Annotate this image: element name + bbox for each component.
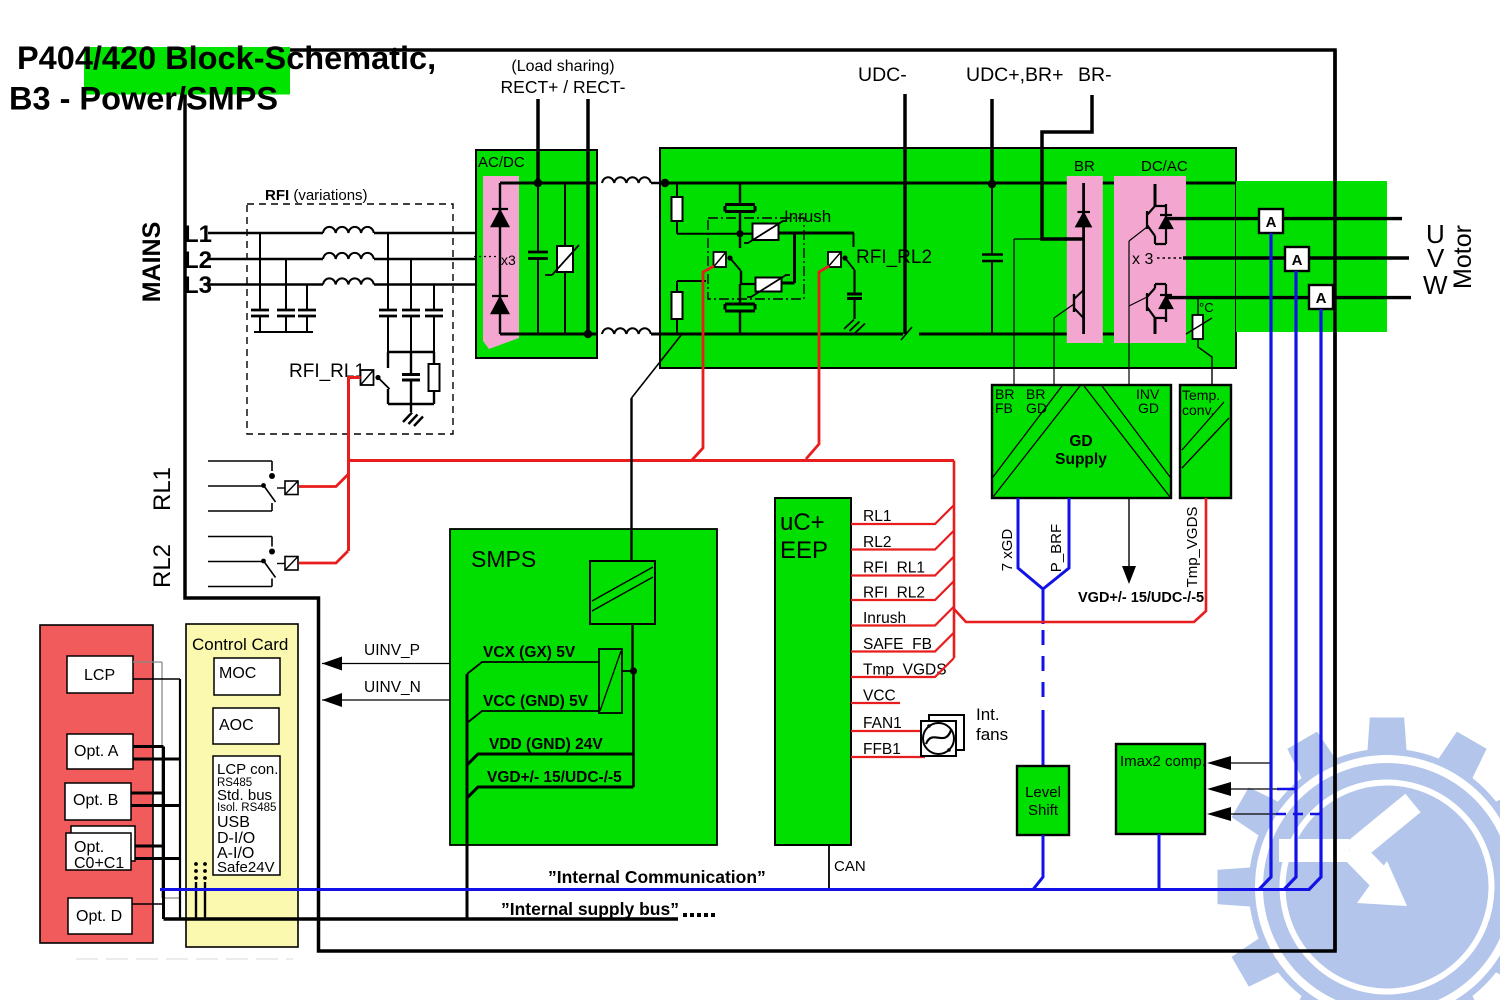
svg-text:USB: USB xyxy=(217,814,250,831)
svg-text:SMPS: SMPS xyxy=(471,546,536,572)
svg-text:Temp.: Temp. xyxy=(1182,387,1220,403)
svg-text:UDC-: UDC- xyxy=(858,64,907,86)
svg-text:Safe24V: Safe24V xyxy=(217,859,275,876)
svg-text:VCC (GND) 5V: VCC (GND) 5V xyxy=(483,693,589,710)
svg-text:B3 - Power/SMPS: B3 - Power/SMPS xyxy=(9,81,278,117)
svg-text:RFI (variations): RFI (variations) xyxy=(265,187,368,204)
svg-text:GD: GD xyxy=(1069,433,1092,450)
svg-text:RECT+ / RECT-: RECT+ / RECT- xyxy=(501,77,626,97)
svg-text:V: V xyxy=(1427,243,1445,273)
svg-text:Shift: Shift xyxy=(1028,802,1059,819)
svg-text:”Internal Communication”: ”Internal Communication” xyxy=(548,867,766,887)
svg-text:°C: °C xyxy=(1199,300,1214,315)
svg-text:7 xGD: 7 xGD xyxy=(999,529,1016,572)
svg-text:GD: GD xyxy=(1138,400,1159,416)
svg-text:GD: GD xyxy=(1026,400,1047,416)
svg-text:UDC+,BR+: UDC+,BR+ xyxy=(966,64,1064,86)
svg-text:C0+C1: C0+C1 xyxy=(74,855,124,872)
svg-text:x 3: x 3 xyxy=(1132,251,1153,268)
svg-text:RL1: RL1 xyxy=(149,467,176,511)
svg-text:VCX (GX) 5V: VCX (GX) 5V xyxy=(483,644,576,661)
svg-text:RL1: RL1 xyxy=(863,508,891,525)
svg-text:Opt. D: Opt. D xyxy=(76,908,122,925)
svg-text:UINV_P: UINV_P xyxy=(364,642,420,659)
svg-text:VGD+/- 15/UDC-/-5: VGD+/- 15/UDC-/-5 xyxy=(1078,590,1204,606)
svg-text:Tmp_VGDS: Tmp_VGDS xyxy=(1184,507,1201,588)
svg-text:BR: BR xyxy=(1074,158,1095,175)
svg-text:RL2: RL2 xyxy=(149,544,176,588)
svg-text:LCP: LCP xyxy=(84,667,115,684)
svg-text:W: W xyxy=(1423,270,1448,300)
svg-text:FB: FB xyxy=(995,400,1013,416)
svg-text:AC/DC: AC/DC xyxy=(478,154,525,171)
svg-text:MAINS: MAINS xyxy=(138,222,166,303)
svg-text:”Internal supply bus”: ”Internal supply bus” xyxy=(501,899,679,919)
svg-text:A: A xyxy=(1316,290,1327,307)
svg-text:VGD+/- 15/UDC-/-5: VGD+/- 15/UDC-/-5 xyxy=(487,769,622,786)
svg-text:Inrush: Inrush xyxy=(784,207,831,226)
svg-text:BR-: BR- xyxy=(1078,64,1112,86)
svg-text:L3: L3 xyxy=(184,272,212,299)
svg-text:fans: fans xyxy=(976,725,1008,744)
svg-text:RFI_RL2: RFI_RL2 xyxy=(856,247,932,268)
svg-text:CAN: CAN xyxy=(834,858,866,875)
svg-text:Opt. A: Opt. A xyxy=(74,743,119,760)
svg-text:Opt. B: Opt. B xyxy=(73,792,118,809)
svg-text:Level: Level xyxy=(1025,784,1061,801)
svg-text:Supply: Supply xyxy=(1055,451,1107,468)
svg-text:EEP: EEP xyxy=(780,537,828,564)
svg-text:VDD (GND) 24V: VDD (GND) 24V xyxy=(489,736,603,753)
svg-text:Isol. RS485: Isol. RS485 xyxy=(217,802,276,814)
svg-text:AOC: AOC xyxy=(219,717,254,734)
svg-text:MOC: MOC xyxy=(219,665,256,682)
svg-text:Imax2 comp.: Imax2 comp. xyxy=(1120,753,1206,770)
svg-text:P_BRF: P_BRF xyxy=(1048,524,1065,572)
svg-text:RFI_RL1: RFI_RL1 xyxy=(863,560,925,577)
svg-text:Opt.: Opt. xyxy=(74,839,104,856)
svg-text:uC+: uC+ xyxy=(780,509,825,536)
svg-text:FAN1: FAN1 xyxy=(863,715,902,732)
svg-text:conv.: conv. xyxy=(1182,402,1214,418)
svg-text:x3: x3 xyxy=(501,252,516,268)
svg-text:UINV_N: UINV_N xyxy=(364,679,421,696)
svg-text:LCP con.: LCP con. xyxy=(217,761,278,778)
svg-text:DC/AC: DC/AC xyxy=(1141,158,1188,175)
svg-text:(Load sharing): (Load sharing) xyxy=(511,58,614,75)
svg-text:FFB1: FFB1 xyxy=(863,741,901,758)
svg-text:A: A xyxy=(1266,214,1277,231)
svg-text:L2: L2 xyxy=(184,247,212,274)
svg-text:Int.: Int. xyxy=(976,705,1000,724)
svg-text:L1: L1 xyxy=(184,221,212,248)
svg-text:P404/420 Block-Schematic,: P404/420 Block-Schematic, xyxy=(17,40,436,76)
svg-text:Control Card: Control Card xyxy=(192,635,288,654)
svg-text:A: A xyxy=(1292,252,1303,269)
svg-text:Motor: Motor xyxy=(1449,225,1477,289)
